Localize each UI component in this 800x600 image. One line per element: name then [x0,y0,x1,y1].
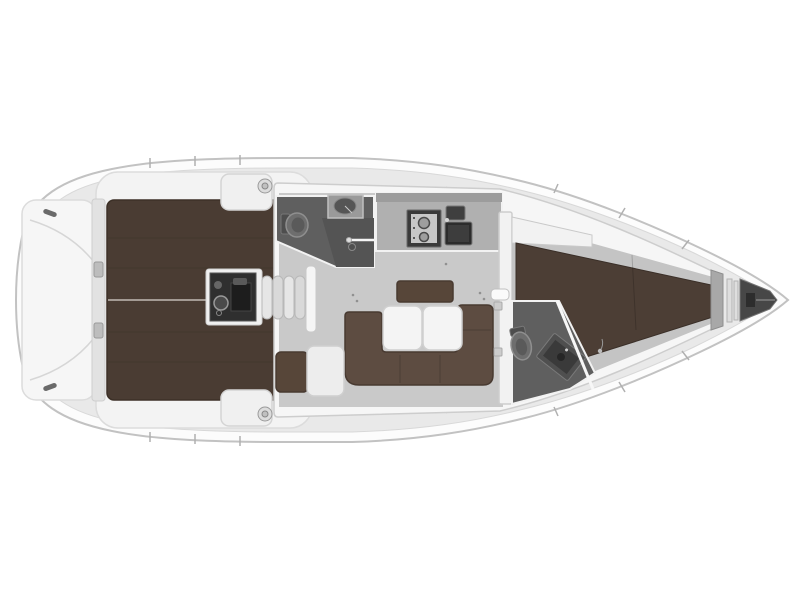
engine-pulley-icon [214,296,228,310]
nav-seat [276,352,308,392]
bow-divider [734,281,738,320]
burner-icon [420,233,429,242]
winch-icon [258,407,272,421]
shower-drain-icon [349,244,356,251]
galley-back-locker [376,193,502,202]
transom-wall [92,199,105,401]
door-knob-icon [347,238,352,243]
cabin-door-handle-icon [491,289,509,300]
bow-divider [727,279,732,322]
settee-backrest [397,281,453,302]
companionway-steps [262,276,305,319]
yacht-floorplan [0,0,800,600]
saloon-table-leaf [423,306,462,350]
transom-hinge-icon [94,262,103,277]
galley [376,193,502,251]
transom-hinge-icon [94,323,103,338]
door-hinge-icon [494,348,502,356]
winch-icon [258,179,272,193]
sink-small-icon [446,206,465,220]
door-hinge-icon [494,302,502,310]
engine-part [214,281,222,289]
chart-table [307,346,344,396]
engine-block [231,283,251,311]
swim-platform [22,200,96,400]
engine-part [233,278,247,285]
faucet-icon [445,218,449,222]
toilet-bowl [292,218,305,233]
sink-basin [448,225,469,242]
floorplan-svg [0,0,800,600]
bow-bulkhead [711,270,723,330]
companionway-handrail [306,266,316,332]
berth-latch-icon [598,349,602,353]
platform-panel [22,200,96,400]
saloon-table-leaf [383,306,422,350]
burner-icon [419,218,430,229]
anchor-fitting-icon [746,293,755,307]
